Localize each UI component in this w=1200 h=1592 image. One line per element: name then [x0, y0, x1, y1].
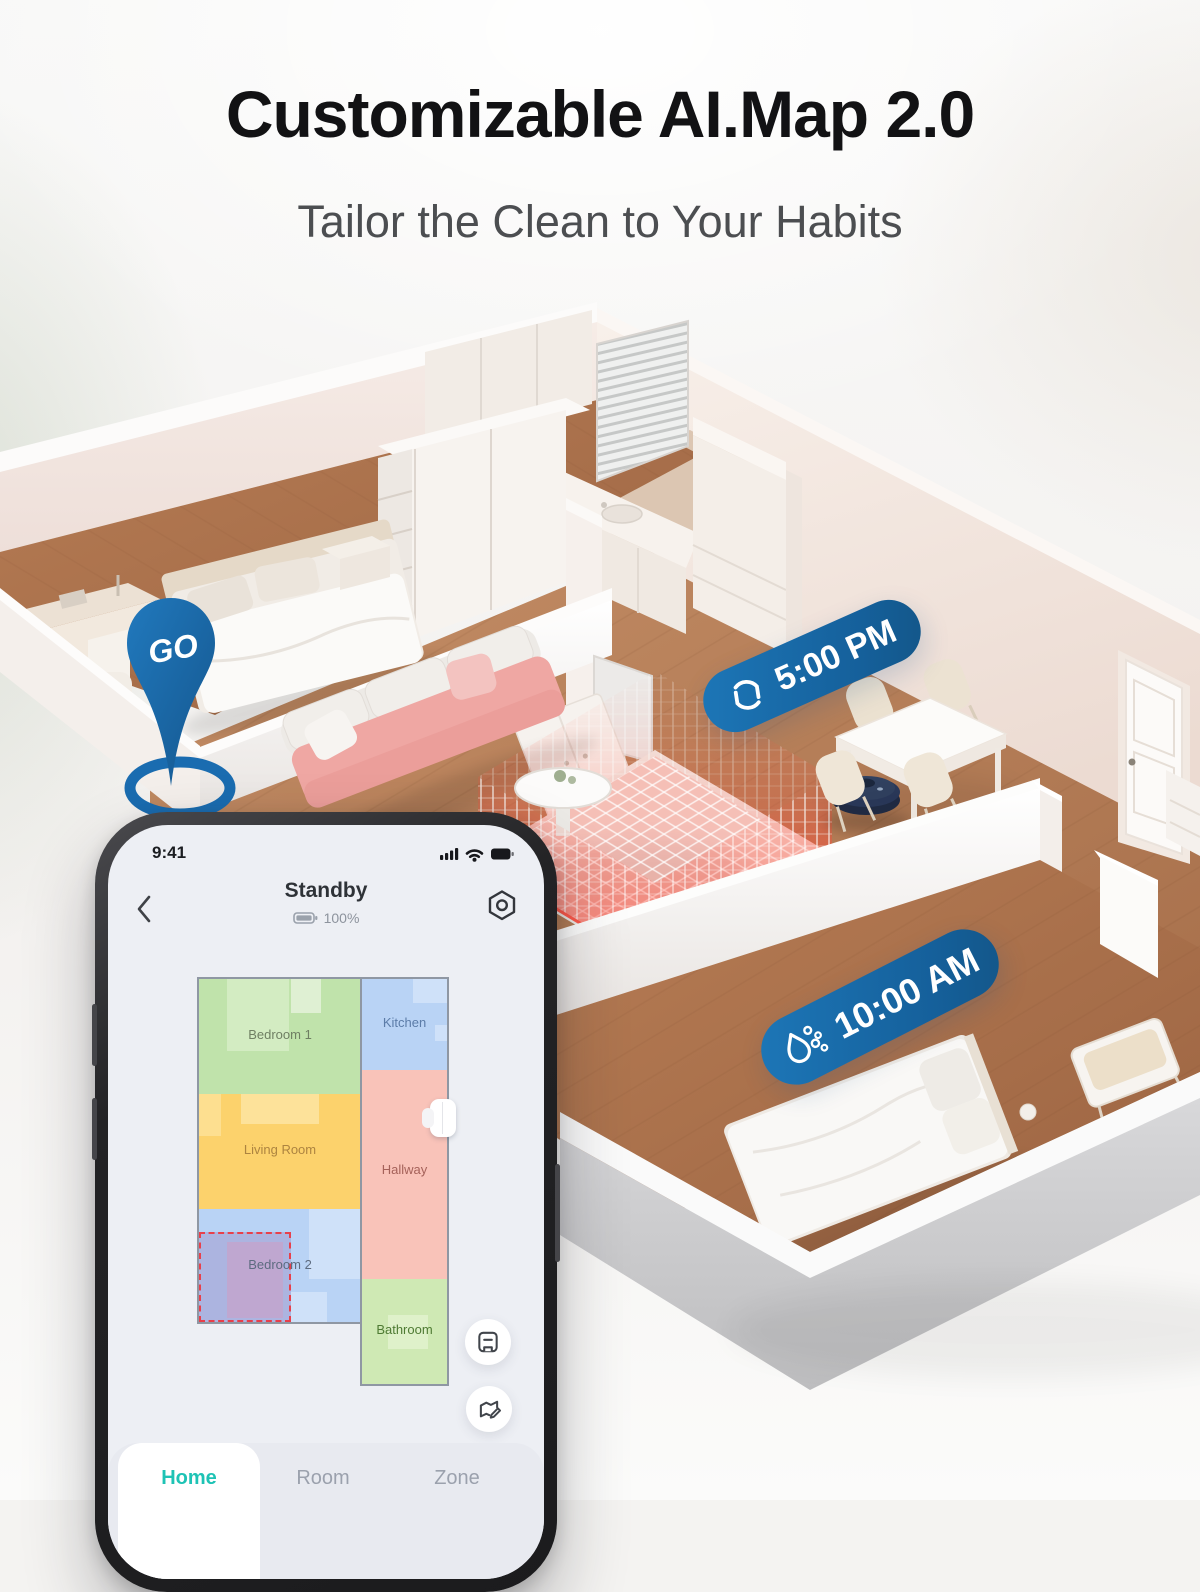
go-pin: GO: [118, 590, 238, 830]
gear-hexagon-icon: [490, 892, 514, 920]
volume-down-button: [92, 1098, 97, 1160]
phone-mockup: 9:41 Standby 100%: [95, 812, 557, 1592]
tab-bar: Home Room Zone: [108, 1443, 544, 1579]
spin-cycle-icon: [722, 670, 772, 720]
map-room-living[interactable]: Living Room: [199, 1094, 361, 1209]
tab-zone[interactable]: Zone: [402, 1467, 512, 1490]
status-bar: 9:41: [108, 825, 544, 873]
status-time: 9:41: [152, 843, 186, 863]
map-left-section: Bedroom 1 Living Room Bedroom 2: [197, 977, 361, 1324]
robot-dock-icon[interactable]: [430, 1099, 456, 1137]
room-label: Hallway: [362, 1162, 447, 1177]
room-label: Kitchen: [362, 1015, 447, 1030]
map-room-bathroom[interactable]: Bathroom: [362, 1279, 447, 1384]
chevron-left-icon: [139, 897, 149, 921]
map-room-kitchen[interactable]: Kitchen: [362, 979, 447, 1070]
settings-button[interactable]: [484, 887, 520, 923]
edit-map-button[interactable]: [466, 1386, 512, 1432]
map-room-bedroom1[interactable]: Bedroom 1: [199, 979, 361, 1094]
room-label: Bedroom 1: [199, 1027, 361, 1042]
room-label: Bedroom 2: [199, 1257, 361, 1272]
power-button: [555, 1164, 560, 1262]
back-button[interactable]: [134, 893, 154, 925]
ball-lamp: [1020, 1104, 1036, 1120]
signal-icon: [440, 848, 458, 860]
room-label: Bathroom: [362, 1322, 447, 1337]
tab-label: Home: [161, 1467, 217, 1489]
room-selection-box[interactable]: [199, 1232, 291, 1322]
room-label: Living Room: [199, 1142, 361, 1157]
wifi-icon: [467, 851, 482, 862]
floor-map[interactable]: Bedroom 1 Living Room Bedroom 2 Kitchen: [197, 977, 449, 1389]
save-map-button[interactable]: [465, 1319, 511, 1365]
tab-room[interactable]: Room: [268, 1467, 378, 1490]
kitchen-sink: [602, 505, 642, 523]
page-title: Customizable AI.Map 2.0: [0, 76, 1200, 152]
water-drop-icon: [773, 1015, 835, 1077]
robot-status-title: Standby: [198, 879, 454, 903]
status-icons: [440, 846, 514, 862]
map-right-section: Kitchen Hallway Bathroom: [360, 977, 449, 1386]
save-map-icon: [475, 1329, 501, 1355]
go-pin-ring: [130, 762, 230, 814]
tab-home[interactable]: Home: [118, 1443, 260, 1579]
phone-screen: 9:41 Standby 100%: [108, 825, 544, 1579]
page-subtitle: Tailor the Clean to Your Habits: [0, 196, 1200, 248]
edit-map-icon: [476, 1396, 502, 1422]
battery-percent: 100%: [324, 910, 360, 926]
battery-level-icon: [293, 911, 318, 925]
volume-up-button: [92, 1004, 97, 1066]
app-header: Standby 100%: [108, 877, 544, 949]
robot-battery: 100%: [198, 910, 454, 926]
battery-icon: [491, 849, 514, 860]
